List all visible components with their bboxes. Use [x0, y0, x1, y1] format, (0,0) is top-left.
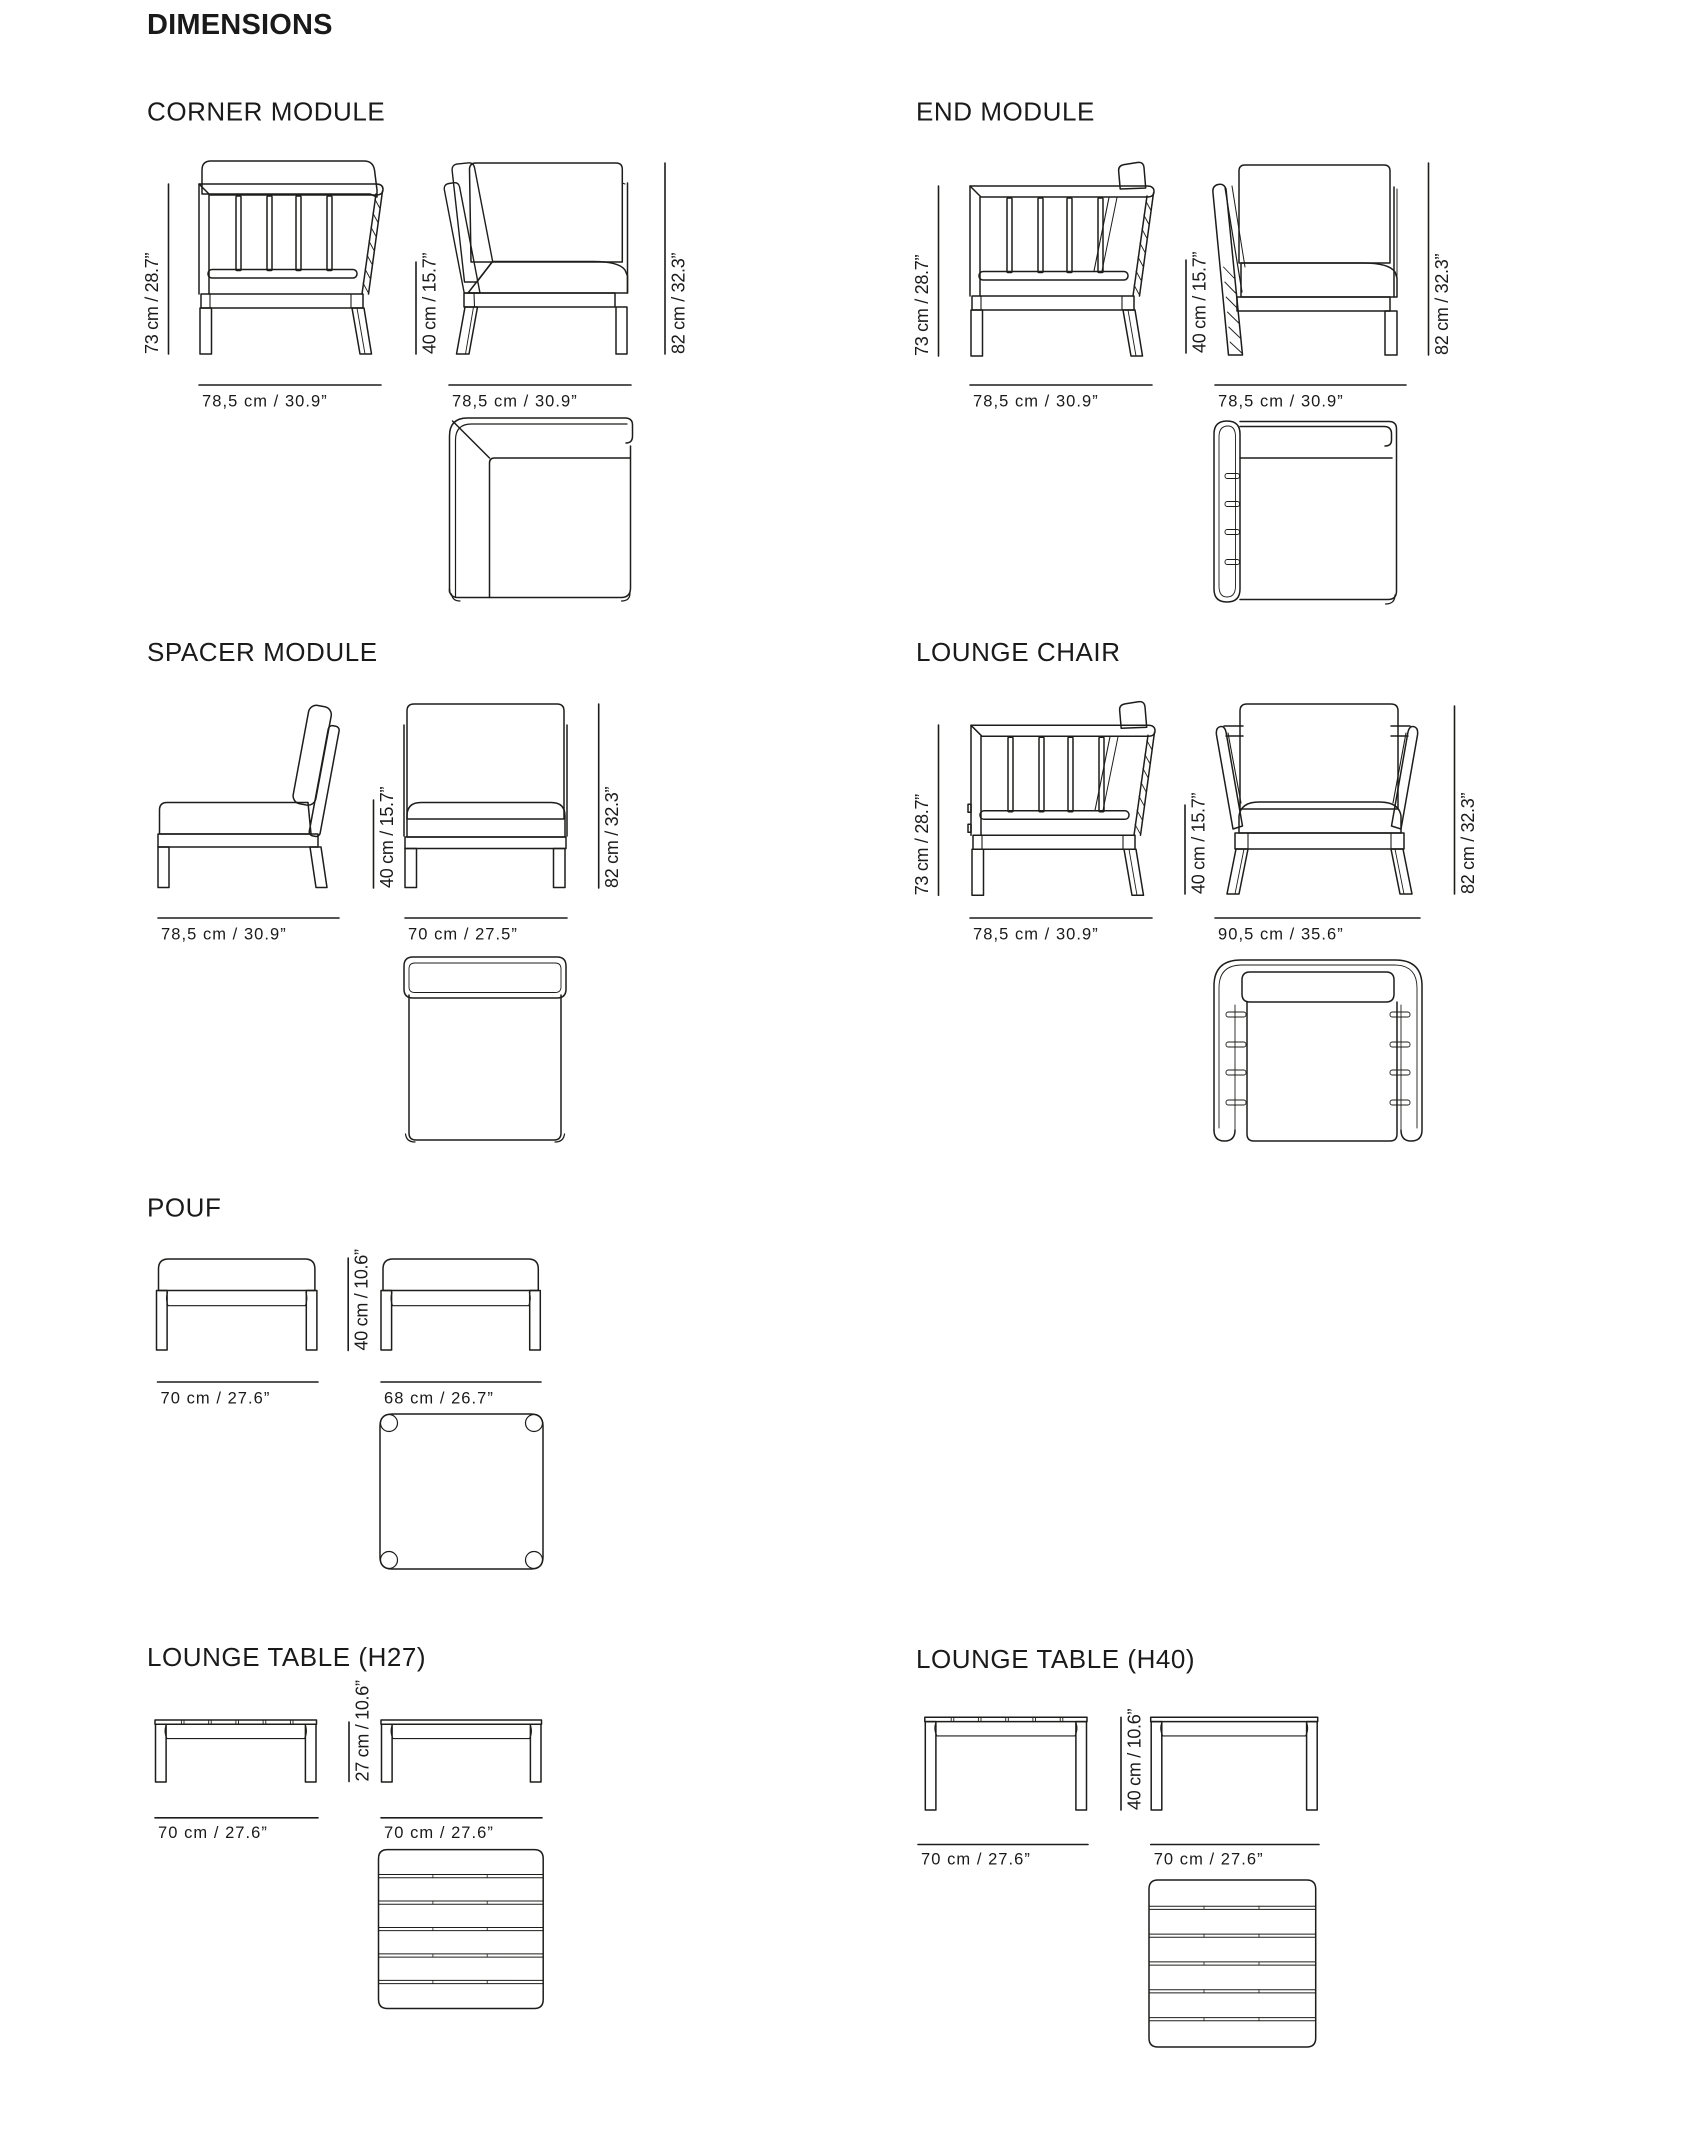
svg-text:82 cm / 32.3”: 82 cm / 32.3” [1458, 793, 1478, 894]
svg-text:78,5 cm / 30.9”: 78,5 cm / 30.9” [452, 393, 578, 411]
svg-text:70 cm / 27.6”: 70 cm / 27.6” [384, 1824, 494, 1842]
svg-text:82 cm / 32.3”: 82 cm / 32.3” [1432, 254, 1452, 355]
svg-text:40 cm / 15.7”: 40 cm / 15.7” [1190, 252, 1210, 353]
svg-text:LOUNGE CHAIR: LOUNGE CHAIR [916, 637, 1121, 667]
svg-text:70 cm / 27.6”: 70 cm / 27.6” [1154, 1851, 1264, 1869]
svg-text:40 cm / 10.6”: 40 cm / 10.6” [352, 1249, 372, 1350]
svg-text:73 cm / 28.7”: 73 cm / 28.7” [912, 255, 932, 356]
svg-text:40 cm / 15.7”: 40 cm / 15.7” [1189, 793, 1209, 894]
svg-text:70 cm / 27.5”: 70 cm / 27.5” [408, 926, 518, 944]
svg-text:78,5 cm / 30.9”: 78,5 cm / 30.9” [1218, 393, 1344, 411]
svg-text:78,5 cm / 30.9”: 78,5 cm / 30.9” [973, 926, 1099, 944]
svg-text:CORNER MODULE: CORNER MODULE [147, 97, 385, 127]
svg-text:70 cm / 27.6”: 70 cm / 27.6” [158, 1824, 268, 1842]
svg-text:40 cm / 15.7”: 40 cm / 15.7” [420, 253, 440, 354]
svg-text:90,5 cm / 35.6”: 90,5 cm / 35.6” [1218, 926, 1344, 944]
svg-text:LOUNGE TABLE (H27): LOUNGE TABLE (H27) [147, 1642, 426, 1672]
svg-text:POUF: POUF [147, 1193, 221, 1223]
svg-text:40 cm / 10.6”: 40 cm / 10.6” [1125, 1709, 1145, 1810]
svg-text:82 cm / 32.3”: 82 cm / 32.3” [602, 787, 622, 888]
svg-text:SPACER MODULE: SPACER MODULE [147, 637, 378, 667]
svg-text:DIMENSIONS: DIMENSIONS [147, 9, 333, 41]
svg-text:40 cm / 15.7”: 40 cm / 15.7” [377, 787, 397, 888]
svg-text:END MODULE: END MODULE [916, 97, 1095, 127]
svg-text:78,5 cm / 30.9”: 78,5 cm / 30.9” [973, 393, 1099, 411]
svg-text:27 cm / 10.6”: 27 cm / 10.6” [353, 1680, 373, 1781]
svg-text:68 cm / 26.7”: 68 cm / 26.7” [384, 1390, 494, 1408]
svg-text:70 cm / 27.6”: 70 cm / 27.6” [921, 1851, 1031, 1869]
svg-text:73 cm / 28.7”: 73 cm / 28.7” [912, 794, 932, 895]
svg-text:73 cm / 28.7”: 73 cm / 28.7” [142, 253, 162, 354]
svg-text:78,5 cm / 30.9”: 78,5 cm / 30.9” [202, 393, 328, 411]
svg-text:78,5 cm / 30.9”: 78,5 cm / 30.9” [161, 926, 287, 944]
svg-text:LOUNGE TABLE (H40): LOUNGE TABLE (H40) [916, 1644, 1195, 1674]
svg-text:70 cm / 27.6”: 70 cm / 27.6” [161, 1390, 271, 1408]
svg-text:82 cm / 32.3”: 82 cm / 32.3” [669, 253, 689, 354]
